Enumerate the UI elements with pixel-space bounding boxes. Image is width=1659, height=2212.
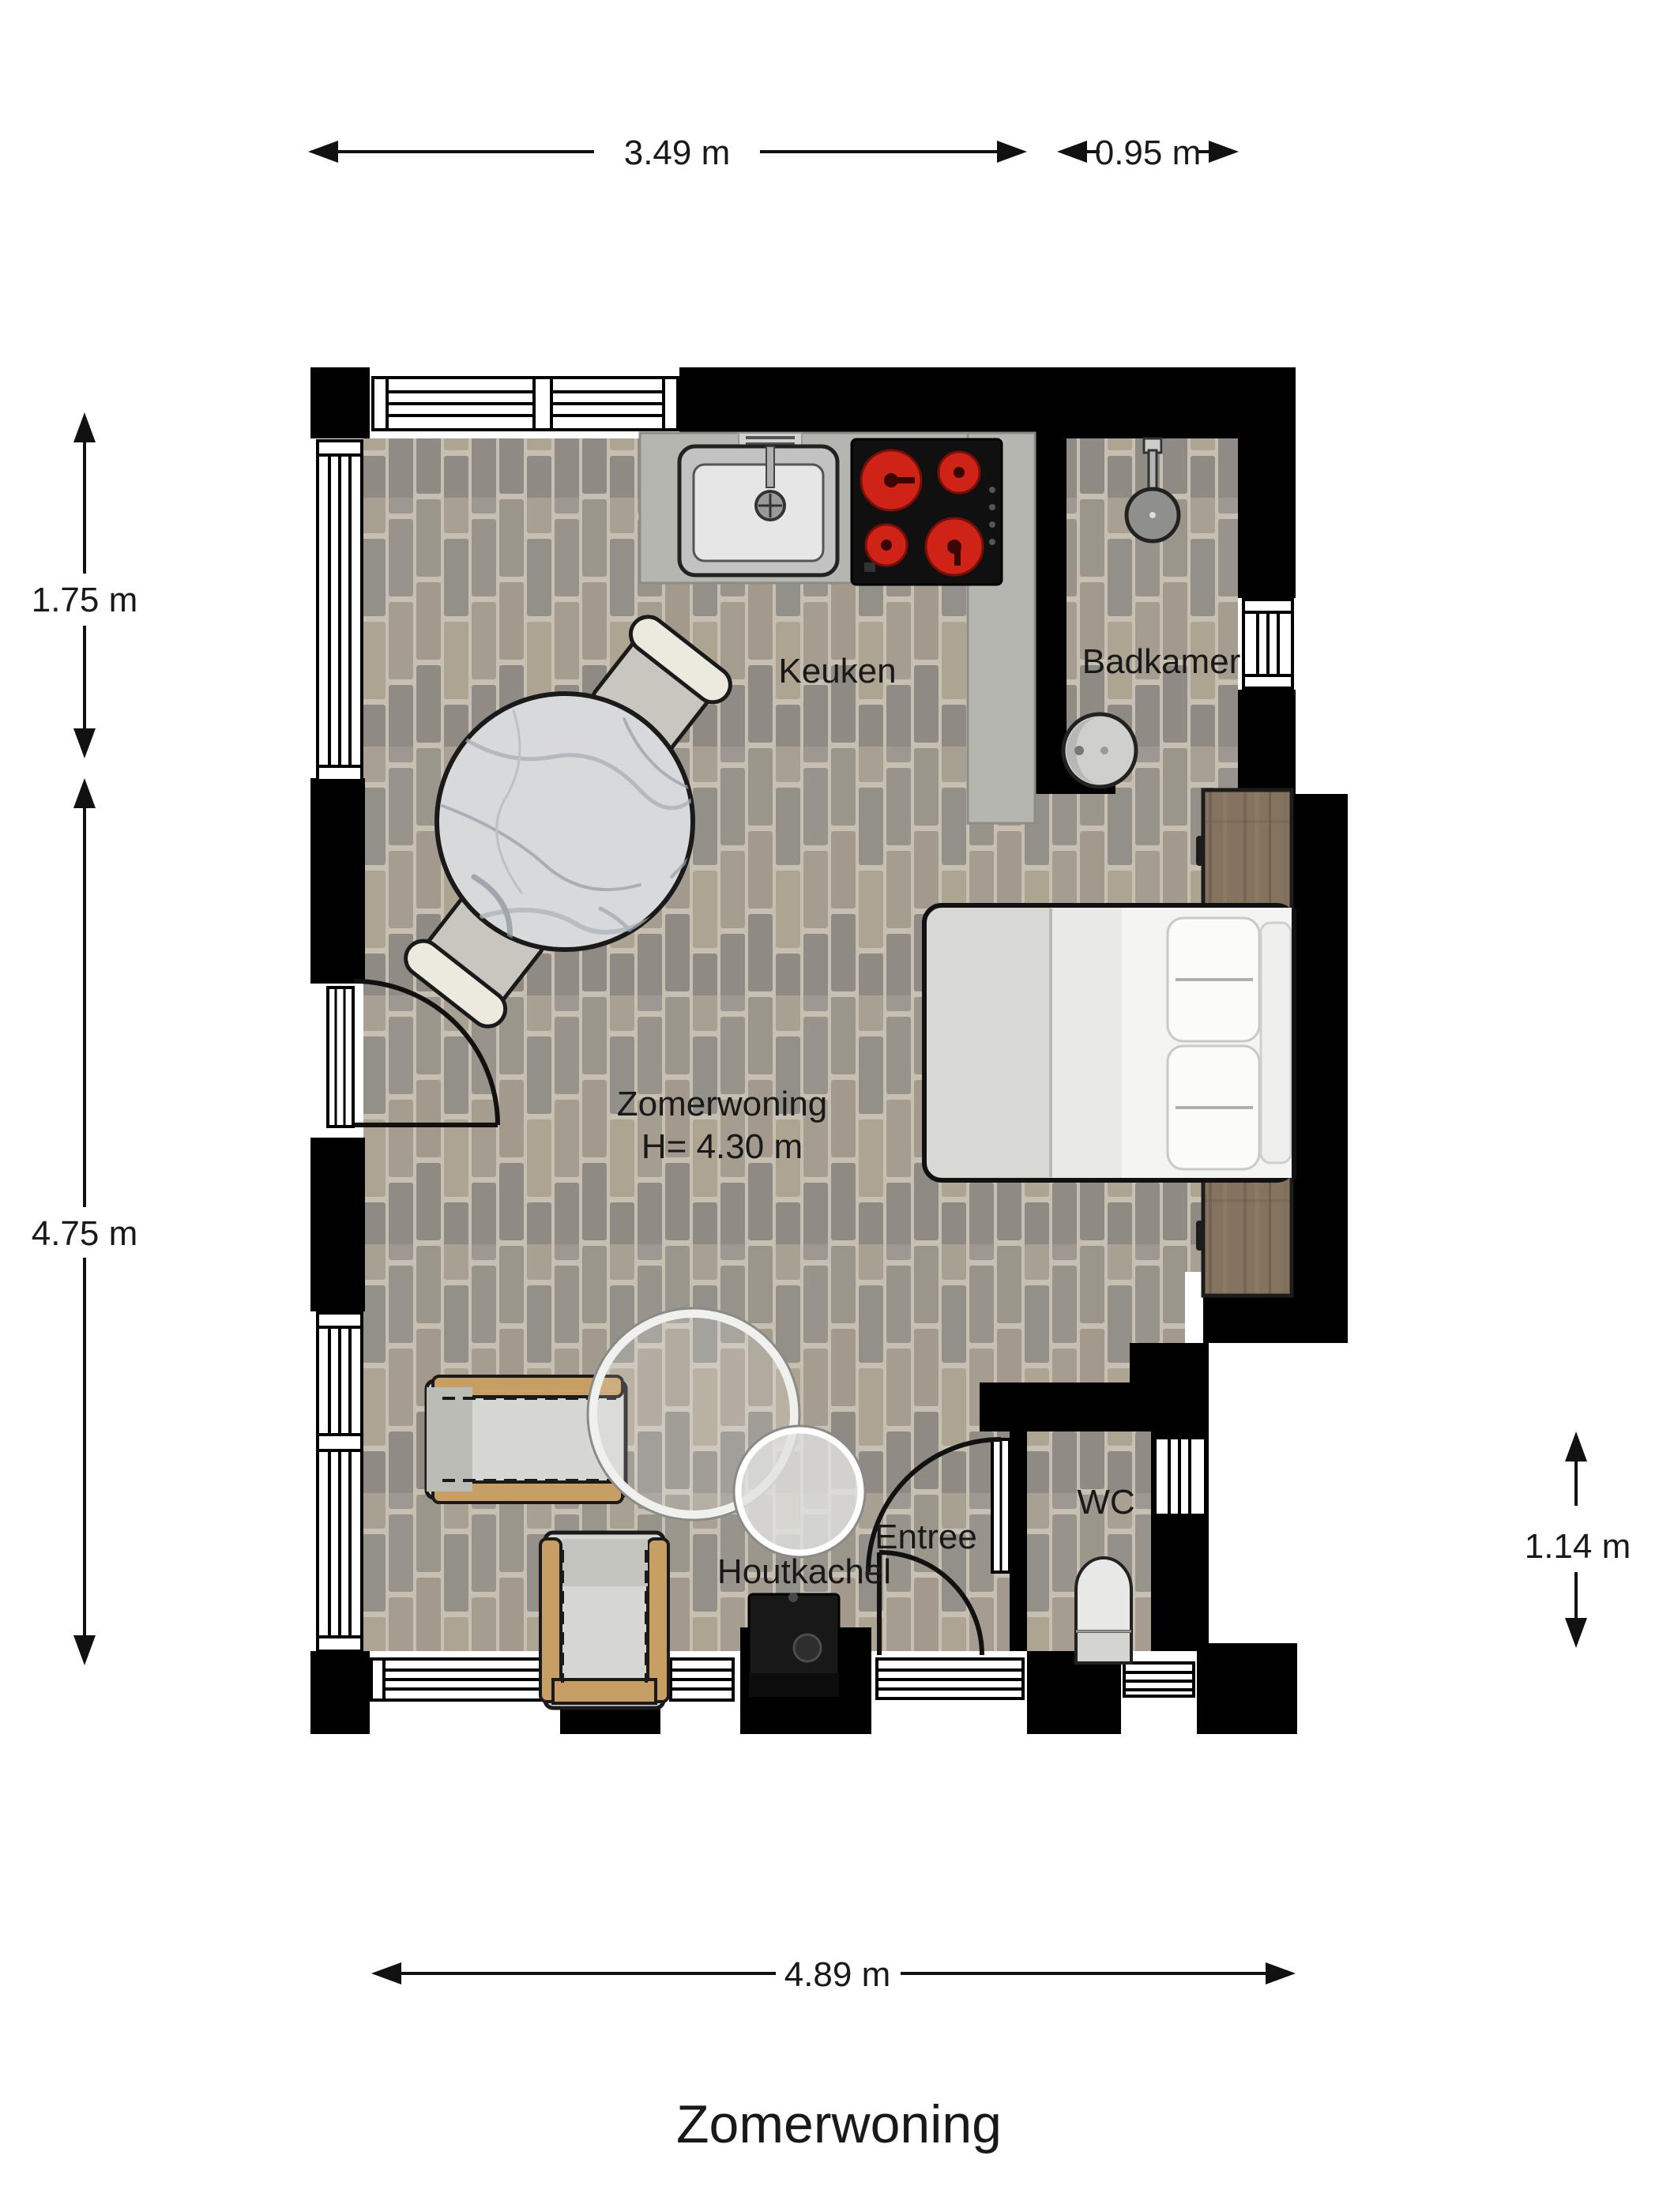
window-top bbox=[373, 378, 678, 430]
window-left-lower bbox=[318, 1313, 362, 1651]
dim-left-lower: 4.75 m bbox=[32, 778, 138, 1665]
wall-right-bed bbox=[1292, 794, 1348, 1296]
label-entree: Entree bbox=[875, 1518, 977, 1556]
wall-bottom-left-corner bbox=[310, 1651, 370, 1734]
wall-left-block-1 bbox=[310, 778, 365, 984]
label-houtkachel: Houtkachel bbox=[717, 1552, 891, 1591]
toilet bbox=[1076, 1558, 1131, 1663]
wall-step-1 bbox=[1203, 1296, 1348, 1343]
label-keuken: Keuken bbox=[778, 652, 896, 690]
wood-stove bbox=[749, 1593, 839, 1697]
dim-top-left: 3.49 m bbox=[308, 134, 1027, 172]
dim-left-lower-label: 4.75 m bbox=[32, 1214, 138, 1253]
wc-room bbox=[1076, 1558, 1131, 1663]
label-main-room: Zomerwoning bbox=[617, 1085, 828, 1123]
bed bbox=[924, 905, 1294, 1180]
plan-title: Zomerwoning bbox=[676, 2094, 1002, 2154]
dim-bottom: 4.89 m bbox=[371, 1955, 1296, 1994]
wall-left-block-2 bbox=[310, 1138, 365, 1311]
wall-bottom-pier-e bbox=[1197, 1643, 1297, 1734]
wall-top-left-corner bbox=[310, 367, 370, 438]
wall-top bbox=[679, 367, 1296, 438]
wall-bath-right-lower bbox=[1238, 690, 1296, 794]
dim-left-upper: 1.75 m bbox=[32, 412, 138, 758]
label-wc: WC bbox=[1077, 1483, 1134, 1522]
floor-hall-to-bathroom bbox=[1035, 794, 1203, 906]
dim-top-left-label: 3.49 m bbox=[624, 134, 731, 172]
wardrobe-bottom-handle bbox=[1196, 1221, 1203, 1251]
wardrobe-bottom bbox=[1203, 1176, 1292, 1296]
armchair-2 bbox=[540, 1533, 668, 1708]
dim-top-right: 0.95 m bbox=[1057, 134, 1239, 172]
bed-back-pillow bbox=[1261, 923, 1291, 1163]
kitchen-sink bbox=[679, 433, 837, 575]
dim-left-upper-label: 1.75 m bbox=[32, 581, 138, 619]
wardrobe-top-handle bbox=[1196, 836, 1203, 866]
label-main-height: H= 4.30 m bbox=[641, 1127, 803, 1166]
floor-plan: Keuken Badkamer Zomerwoning H= 4.30 m Ho… bbox=[0, 0, 1659, 2212]
window-bathroom-right bbox=[1243, 600, 1292, 688]
window-bottom-small bbox=[671, 1659, 733, 1700]
dim-right-label: 1.14 m bbox=[1525, 1527, 1631, 1566]
window-bottom-left bbox=[371, 1659, 558, 1700]
washbasin bbox=[1063, 714, 1136, 787]
window-wc-right bbox=[1155, 1438, 1206, 1515]
dim-top-right-label: 0.95 m bbox=[1095, 134, 1202, 172]
wardrobe-top bbox=[1203, 790, 1292, 916]
wall-wc-left bbox=[1010, 1431, 1027, 1651]
wall-kitchen-bath-divider bbox=[1035, 367, 1066, 794]
kitchen-hob bbox=[852, 439, 1002, 585]
coffee-table-small bbox=[734, 1426, 865, 1557]
dim-right: 1.14 m bbox=[1525, 1431, 1631, 1648]
window-left-upper bbox=[318, 441, 362, 781]
dim-bottom-label: 4.89 m bbox=[784, 1955, 891, 1994]
wall-above-wc bbox=[980, 1382, 1153, 1431]
window-wc-bottom bbox=[1124, 1663, 1194, 1696]
label-badkamer: Badkamer bbox=[1082, 642, 1241, 681]
wall-bath-right-upper bbox=[1238, 438, 1296, 598]
